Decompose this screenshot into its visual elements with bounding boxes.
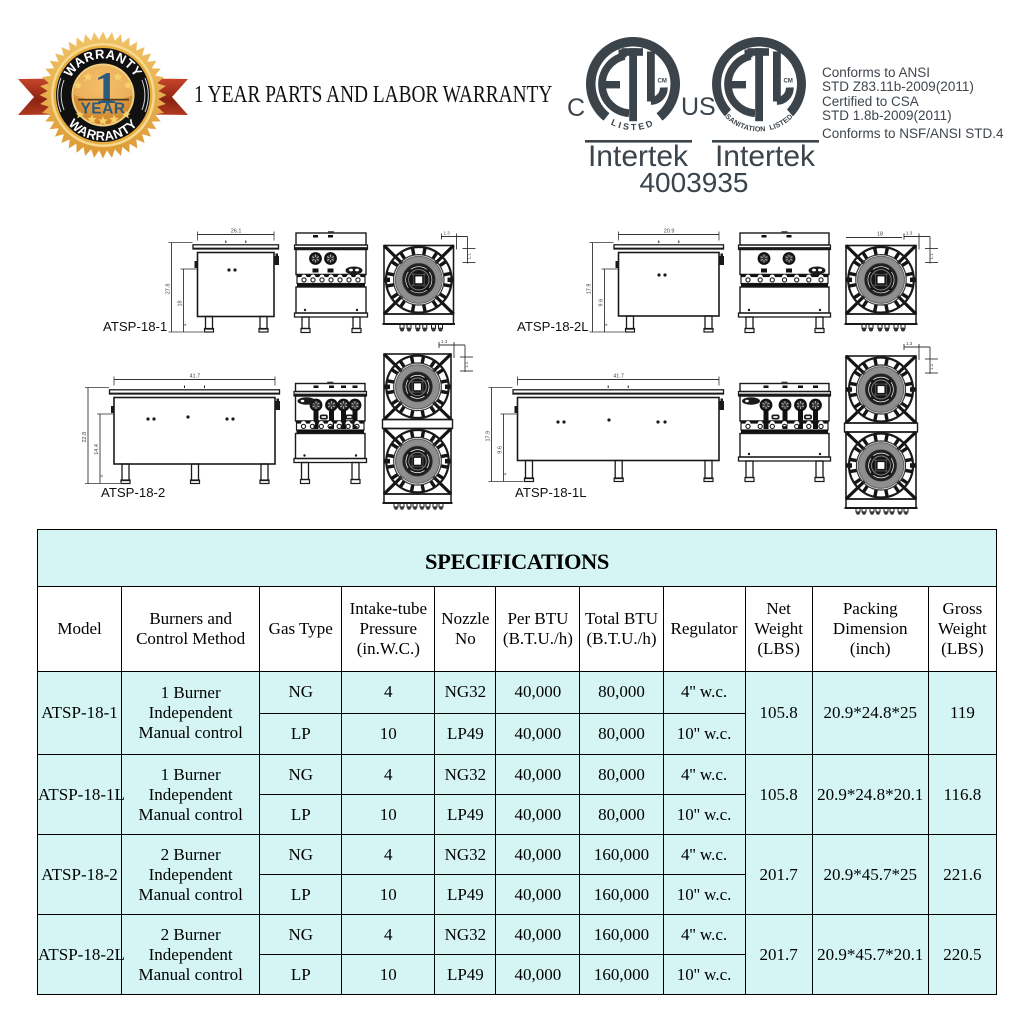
svg-text:18: 18 xyxy=(877,232,883,238)
svg-text:YEAR: YEAR xyxy=(80,101,125,118)
svg-text:1.3: 1.3 xyxy=(444,231,451,236)
svg-text:1.3: 1.3 xyxy=(906,341,913,346)
svg-text:41.7: 41.7 xyxy=(613,374,624,380)
svg-text:ATSP-18-1L: ATSP-18-1L xyxy=(515,485,587,500)
svg-text:26.1: 26.1 xyxy=(231,229,242,235)
svg-text:14.4: 14.4 xyxy=(94,444,100,455)
svg-text:1.1: 1.1 xyxy=(464,361,469,368)
svg-text:CM: CM xyxy=(784,79,793,85)
svg-text:41.7: 41.7 xyxy=(190,374,201,380)
svg-text:27.8: 27.8 xyxy=(166,284,172,295)
svg-text:C: C xyxy=(567,94,585,122)
svg-text:ATSP-18-2L: ATSP-18-2L xyxy=(517,319,589,334)
svg-text:ATSP-18-2: ATSP-18-2 xyxy=(101,485,165,500)
svg-text:Intertek: Intertek xyxy=(715,140,816,173)
svg-text:22.8: 22.8 xyxy=(82,432,88,443)
svg-text:17.9: 17.9 xyxy=(587,284,593,295)
svg-text:9.6: 9.6 xyxy=(599,299,605,307)
svg-text:1.3: 1.3 xyxy=(441,339,448,344)
svg-text:1.3: 1.3 xyxy=(906,231,913,236)
svg-text:9.6: 9.6 xyxy=(498,446,504,454)
svg-text:18: 18 xyxy=(178,300,184,306)
svg-text:ATSP-18-1: ATSP-18-1 xyxy=(103,319,167,334)
svg-text:1.1: 1.1 xyxy=(929,363,934,370)
svg-text:17.9: 17.9 xyxy=(486,431,492,442)
svg-text:1.1: 1.1 xyxy=(467,253,472,260)
svg-text:20.9: 20.9 xyxy=(664,229,675,235)
svg-text:1.1: 1.1 xyxy=(929,253,934,260)
svg-text:CM: CM xyxy=(658,79,667,85)
